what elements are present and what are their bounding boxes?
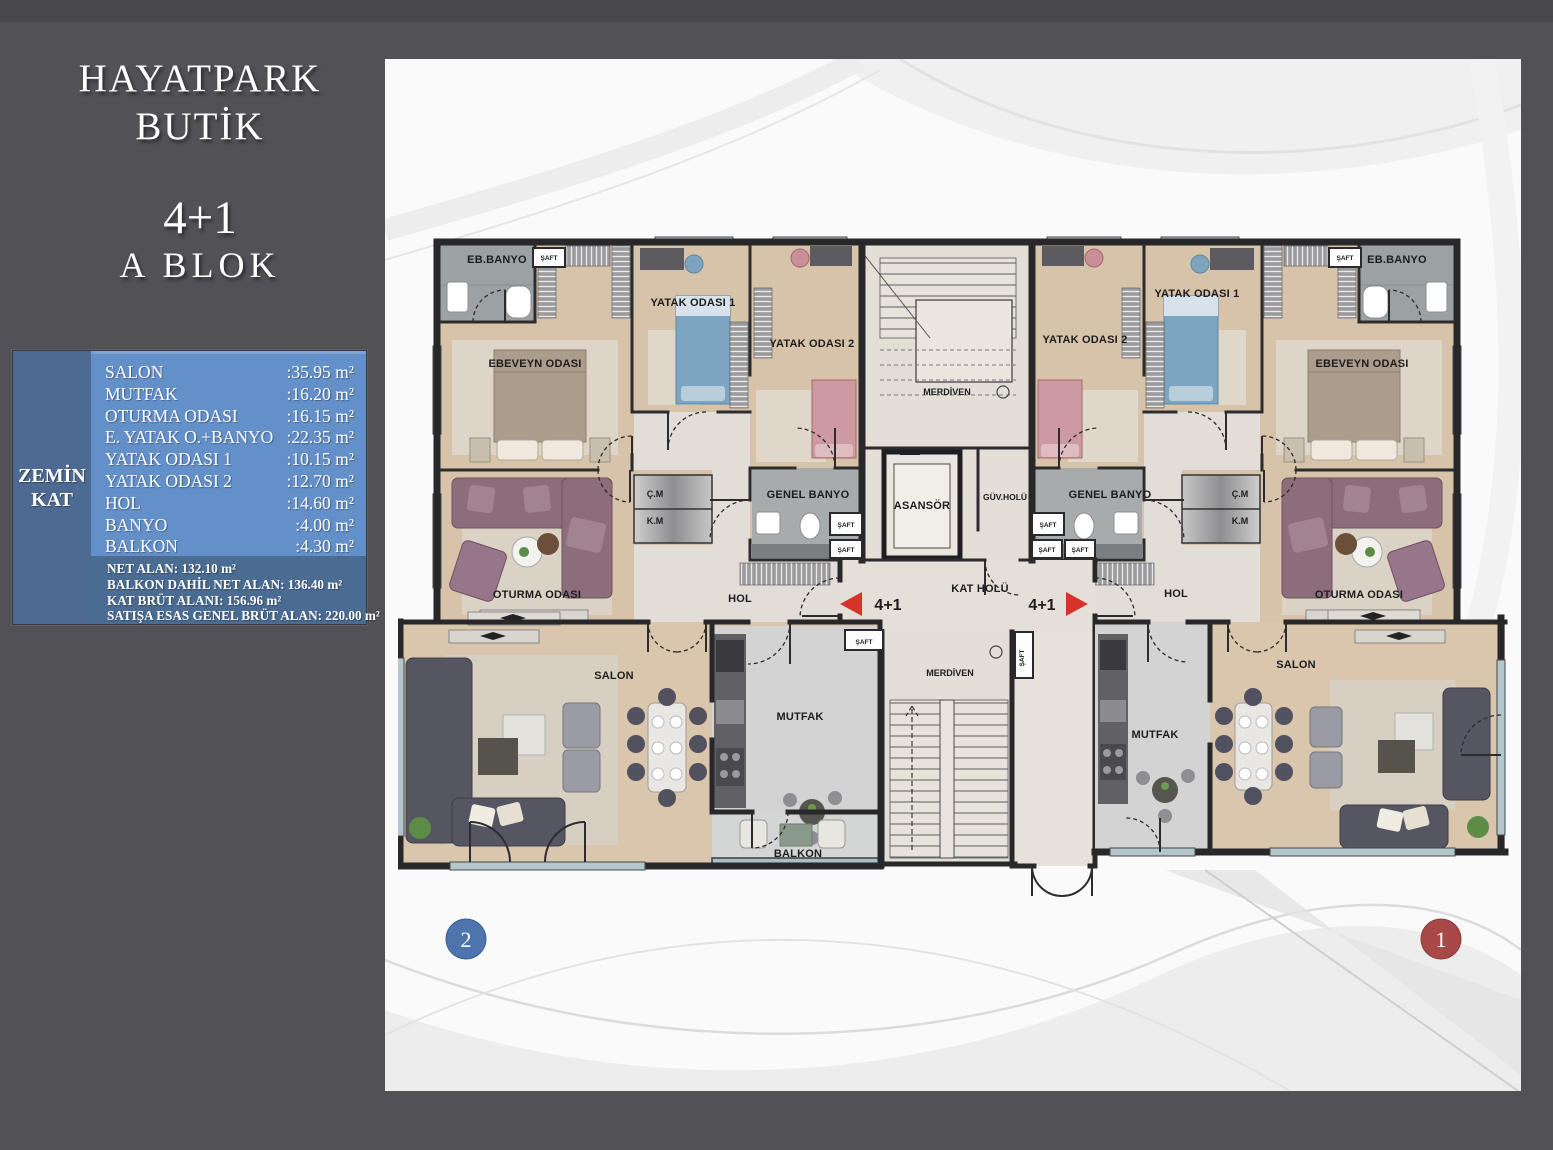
room-label-guv-holu: GÜV.HOLÜ [983,492,1027,502]
room-label-oturma-right: OTURMA ODASI [1315,589,1403,601]
left-lower-geometry [398,612,880,870]
summary-line: NET ALAN: 132.10 m² [107,561,360,577]
sidebar: HAYATPARK BUTİK 4+1 A BLOK ZEMİN KAT SAL… [0,0,385,1150]
room-label-salon-left: SALON [594,670,634,682]
saft-label: ŞAFT [1039,547,1056,554]
room-label-hol-left: HOL [728,593,752,605]
page: HAYATPARK BUTİK 4+1 A BLOK ZEMİN KAT SAL… [0,0,1553,1150]
room-label-balkon-left: BALKON [774,848,822,860]
room-label-merdiven-bottom: MERDİVEN [926,668,974,678]
room-label-cm-right: Ç.M [1232,489,1249,499]
room-label-genel-banyo-left: GENEL BANYO [767,489,850,501]
room-label-ebeveyn-left: EBEVEYN ODASI [488,358,581,370]
table-row: BANYO:4.00 m² [105,515,354,537]
block-name: A BLOK [40,243,360,287]
unit-upper-geometry [433,237,862,625]
summary-line: SATIŞA ESAS GENEL BRÜT ALAN: 220.00 m² [107,608,360,624]
summary-line: BALKON DAHİL NET ALAN: 136.40 m² [107,577,360,593]
summary-line: KAT BRÜT ALANI: 156.96 m² [107,593,360,609]
unit-type: 4+1 [40,193,360,243]
room-label-cm-left: Ç.M [647,489,664,499]
room-label-yatak2-left: YATAK ODASI 2 [770,338,855,350]
room-label-eb-banyo-right: EB.BANYO [1367,254,1427,266]
table-row: E. YATAK O.+BANYO:22.35 m² [105,427,354,449]
room-label-salon-right: SALON [1276,659,1316,671]
unit-tag-left: 4+1 [874,597,901,614]
room-label-merdiven-top: MERDİVEN [923,387,971,397]
floor-label-line2: KAT [31,488,73,512]
unit-tag-right: 4+1 [1028,597,1055,614]
table-row: MUTFAK:16.20 m² [105,384,354,406]
room-label-yatak1-left: YATAK ODASI 1 [651,297,736,309]
area-info-panel: ZEMİN KAT SALON:35.95 m² MUTFAK:16.20 m²… [12,350,367,625]
room-label-oturma-left: OTURMA ODASI [493,589,581,601]
saft-label: ŞAFT [1040,522,1057,529]
room-label-yatak2-right: YATAK ODASI 2 [1043,334,1128,346]
unit-1-number: 1 [1436,927,1447,952]
table-row: OTURMA ODASI:16.15 m² [105,406,354,428]
floor-plan: EB.BANYO EBEVEYN ODASI YATAK ODASI 1 YAT… [398,228,1512,968]
room-label-km-left: K.M [647,516,664,526]
saft-label: ŞAFT [838,522,855,529]
room-label-hol-right: HOL [1164,588,1188,600]
table-row: BALKON:4.30 m² [105,536,354,558]
room-label-km-right: K.M [1232,516,1249,526]
table-row: HOL:14.60 m² [105,493,354,515]
saft-label: ŞAFT [541,255,558,262]
room-label-ebeveyn-right: EBEVEYN ODASI [1315,358,1408,370]
title-block: HAYATPARK BUTİK 4+1 A BLOK [40,55,360,287]
room-label-yatak1-right: YATAK ODASI 1 [1155,288,1240,300]
saft-label: ŞAFT [838,547,855,554]
saft-label: ŞAFT [856,639,873,646]
table-row: YATAK ODASI 1:10.15 m² [105,449,354,471]
project-title-line2: BUTİK [40,103,360,151]
floor-label-line1: ZEMİN [18,464,86,488]
unit-2-number: 2 [461,927,472,952]
unit-markers: 2 1 [446,919,1461,959]
table-row: YATAK ODASI 2:12.70 m² [105,471,354,493]
room-label-mutfak-left: MUTFAK [776,711,823,723]
area-summary: NET ALAN: 132.10 m² BALKON DAHİL NET ALA… [91,556,366,624]
room-label-kat-holu: KAT HOLÜ [951,582,1009,595]
room-label-mutfak-right: MUTFAK [1131,729,1178,741]
floor-label: ZEMİN KAT [13,351,91,624]
room-label-asansor: ASANSÖR [894,499,950,512]
room-label-eb-banyo-left: EB.BANYO [467,254,527,266]
room-areas-table: SALON:35.95 m² MUTFAK:16.20 m² OTURMA OD… [91,351,366,556]
table-row: SALON:35.95 m² [105,362,354,384]
saft-label: ŞAFT [1337,255,1354,262]
room-label-genel-banyo-right: GENEL BANYO [1069,489,1152,501]
saft-label: ŞAFT [1019,649,1026,666]
project-title-line1: HAYATPARK [40,55,360,103]
saft-label: ŞAFT [1072,547,1089,554]
